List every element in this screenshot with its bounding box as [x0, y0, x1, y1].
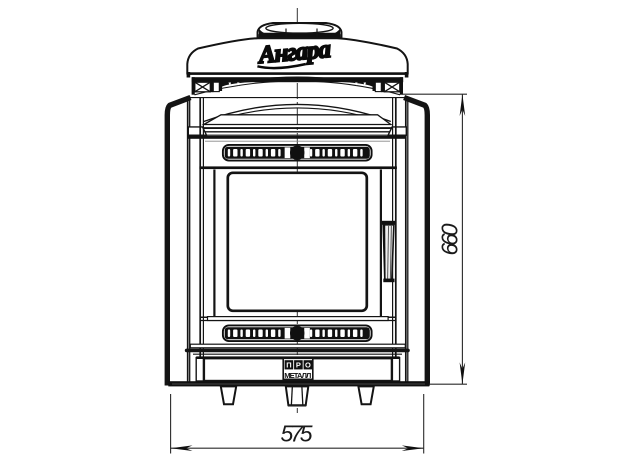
- svg-text:660: 660: [437, 223, 463, 255]
- svg-text:575: 575: [281, 421, 313, 447]
- svg-text:Р: Р: [296, 361, 301, 370]
- svg-text:МЕТАЛЛ: МЕТАЛЛ: [284, 371, 311, 380]
- svg-text:П: П: [286, 361, 291, 370]
- svg-text:О: О: [305, 361, 311, 370]
